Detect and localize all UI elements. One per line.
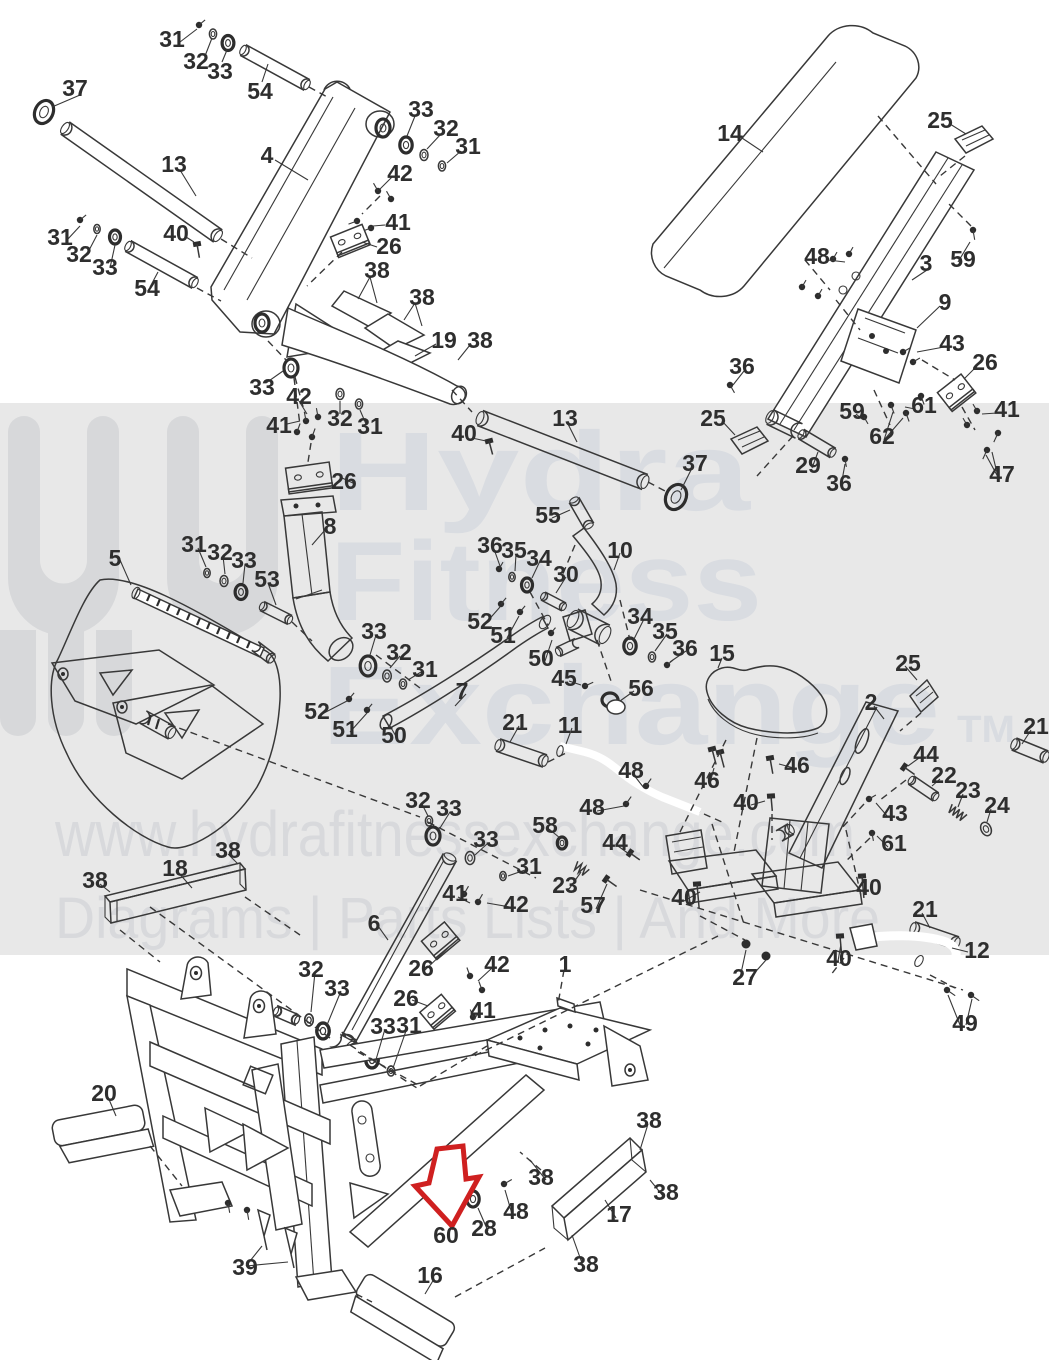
svg-text:31: 31 bbox=[455, 133, 481, 159]
svg-text:43: 43 bbox=[939, 330, 965, 356]
svg-text:34: 34 bbox=[627, 603, 653, 629]
svg-text:26: 26 bbox=[972, 349, 998, 375]
svg-text:5: 5 bbox=[109, 545, 122, 571]
svg-text:23: 23 bbox=[552, 872, 578, 898]
svg-text:38: 38 bbox=[409, 284, 435, 310]
svg-text:40: 40 bbox=[163, 220, 189, 246]
svg-text:26: 26 bbox=[376, 233, 402, 259]
svg-text:41: 41 bbox=[442, 880, 468, 906]
svg-text:37: 37 bbox=[682, 450, 708, 476]
svg-text:23: 23 bbox=[955, 777, 981, 803]
svg-text:3: 3 bbox=[920, 250, 933, 276]
svg-text:59: 59 bbox=[950, 246, 976, 272]
svg-text:32: 32 bbox=[66, 241, 92, 267]
svg-text:21: 21 bbox=[1023, 713, 1049, 739]
svg-text:38: 38 bbox=[573, 1251, 599, 1277]
svg-text:55: 55 bbox=[535, 502, 561, 528]
svg-text:38: 38 bbox=[82, 867, 108, 893]
svg-text:33: 33 bbox=[436, 795, 462, 821]
svg-text:17: 17 bbox=[606, 1201, 632, 1227]
svg-text:11: 11 bbox=[558, 712, 583, 738]
svg-text:8: 8 bbox=[324, 513, 337, 539]
svg-text:48: 48 bbox=[804, 243, 830, 269]
svg-text:22: 22 bbox=[931, 762, 957, 788]
svg-text:40: 40 bbox=[451, 420, 477, 446]
svg-text:41: 41 bbox=[266, 412, 292, 438]
svg-text:32: 32 bbox=[183, 48, 209, 74]
svg-text:54: 54 bbox=[247, 78, 273, 104]
svg-text:46: 46 bbox=[784, 752, 810, 778]
svg-text:25: 25 bbox=[700, 405, 726, 431]
svg-text:60: 60 bbox=[433, 1222, 459, 1248]
svg-text:48: 48 bbox=[618, 757, 644, 783]
svg-text:46: 46 bbox=[694, 767, 720, 793]
svg-text:38: 38 bbox=[467, 327, 493, 353]
svg-text:39: 39 bbox=[232, 1254, 258, 1280]
svg-text:18: 18 bbox=[162, 855, 188, 881]
svg-text:38: 38 bbox=[653, 1179, 679, 1205]
svg-text:54: 54 bbox=[134, 275, 160, 301]
svg-text:26: 26 bbox=[408, 955, 434, 981]
svg-text:38: 38 bbox=[528, 1164, 554, 1190]
svg-text:33: 33 bbox=[249, 374, 275, 400]
svg-text:51: 51 bbox=[490, 622, 516, 648]
svg-text:25: 25 bbox=[927, 107, 953, 133]
svg-text:33: 33 bbox=[370, 1013, 396, 1039]
svg-text:57: 57 bbox=[580, 892, 606, 918]
svg-text:15: 15 bbox=[709, 640, 735, 666]
svg-text:30: 30 bbox=[553, 561, 579, 587]
svg-text:19: 19 bbox=[431, 327, 457, 353]
svg-text:27: 27 bbox=[732, 964, 758, 990]
svg-text:33: 33 bbox=[473, 826, 499, 852]
svg-text:45: 45 bbox=[551, 665, 577, 691]
svg-text:31: 31 bbox=[159, 26, 185, 52]
svg-text:36: 36 bbox=[729, 353, 755, 379]
svg-text:32: 32 bbox=[386, 639, 412, 665]
svg-text:16: 16 bbox=[417, 1262, 443, 1288]
svg-text:49: 49 bbox=[952, 1010, 978, 1036]
svg-text:38: 38 bbox=[636, 1107, 662, 1133]
svg-text:41: 41 bbox=[385, 209, 411, 235]
svg-text:36: 36 bbox=[477, 532, 503, 558]
svg-text:2: 2 bbox=[865, 689, 878, 715]
svg-text:6: 6 bbox=[368, 910, 381, 936]
svg-text:41: 41 bbox=[470, 997, 496, 1023]
svg-text:34: 34 bbox=[526, 545, 552, 571]
svg-text:31: 31 bbox=[181, 531, 207, 557]
svg-text:29: 29 bbox=[795, 452, 821, 478]
svg-text:13: 13 bbox=[552, 405, 578, 431]
svg-text:53: 53 bbox=[254, 566, 280, 592]
svg-text:50: 50 bbox=[528, 645, 554, 671]
svg-text:10: 10 bbox=[607, 537, 633, 563]
svg-text:42: 42 bbox=[484, 951, 510, 977]
svg-text:50: 50 bbox=[381, 722, 407, 748]
svg-text:42: 42 bbox=[387, 160, 413, 186]
svg-text:44: 44 bbox=[602, 829, 628, 855]
svg-text:32: 32 bbox=[327, 405, 353, 431]
svg-text:43: 43 bbox=[882, 800, 908, 826]
svg-text:33: 33 bbox=[408, 96, 434, 122]
svg-text:1: 1 bbox=[559, 951, 572, 977]
svg-text:24: 24 bbox=[984, 792, 1010, 818]
svg-text:4: 4 bbox=[261, 142, 274, 168]
svg-text:25: 25 bbox=[895, 650, 921, 676]
svg-text:32: 32 bbox=[405, 787, 431, 813]
svg-text:33: 33 bbox=[92, 254, 118, 280]
svg-text:31: 31 bbox=[412, 656, 438, 682]
svg-text:38: 38 bbox=[364, 257, 390, 283]
svg-text:40: 40 bbox=[733, 789, 759, 815]
svg-text:51: 51 bbox=[332, 716, 358, 742]
svg-text:48: 48 bbox=[579, 794, 605, 820]
svg-text:47: 47 bbox=[989, 461, 1015, 487]
svg-text:20: 20 bbox=[91, 1080, 117, 1106]
svg-text:13: 13 bbox=[161, 151, 187, 177]
svg-text:9: 9 bbox=[939, 289, 952, 315]
svg-text:42: 42 bbox=[286, 383, 312, 409]
svg-text:7: 7 bbox=[456, 678, 469, 704]
svg-text:40: 40 bbox=[671, 884, 697, 910]
svg-text:52: 52 bbox=[304, 698, 330, 724]
svg-text:28: 28 bbox=[471, 1215, 497, 1241]
svg-text:62: 62 bbox=[869, 423, 895, 449]
svg-text:TM: TM bbox=[957, 709, 1015, 751]
svg-text:36: 36 bbox=[672, 635, 698, 661]
svg-text:21: 21 bbox=[502, 709, 528, 735]
svg-text:33: 33 bbox=[324, 975, 350, 1001]
svg-text:33: 33 bbox=[207, 58, 233, 84]
svg-text:52: 52 bbox=[467, 608, 493, 634]
svg-text:48: 48 bbox=[503, 1198, 529, 1224]
svg-text:31: 31 bbox=[357, 413, 383, 439]
svg-text:12: 12 bbox=[964, 937, 990, 963]
svg-text:61: 61 bbox=[881, 830, 907, 856]
svg-text:32: 32 bbox=[207, 539, 233, 565]
svg-text:31: 31 bbox=[516, 853, 542, 879]
svg-text:14: 14 bbox=[717, 120, 743, 146]
svg-text:61: 61 bbox=[911, 392, 937, 418]
svg-text:33: 33 bbox=[231, 547, 257, 573]
svg-text:21: 21 bbox=[912, 896, 938, 922]
svg-text:40: 40 bbox=[826, 945, 852, 971]
svg-text:40: 40 bbox=[856, 874, 882, 900]
svg-text:41: 41 bbox=[994, 396, 1020, 422]
svg-text:56: 56 bbox=[628, 675, 654, 701]
svg-text:38: 38 bbox=[215, 837, 241, 863]
svg-text:58: 58 bbox=[532, 812, 558, 838]
svg-text:33: 33 bbox=[361, 618, 387, 644]
svg-text:26: 26 bbox=[393, 985, 419, 1011]
svg-text:26: 26 bbox=[331, 468, 357, 494]
svg-text:42: 42 bbox=[503, 891, 529, 917]
svg-text:36: 36 bbox=[826, 470, 852, 496]
svg-text:59: 59 bbox=[839, 398, 865, 424]
svg-text:31: 31 bbox=[396, 1012, 422, 1038]
svg-text:37: 37 bbox=[62, 75, 88, 101]
svg-text:32: 32 bbox=[298, 956, 324, 982]
svg-text:35: 35 bbox=[501, 537, 527, 563]
